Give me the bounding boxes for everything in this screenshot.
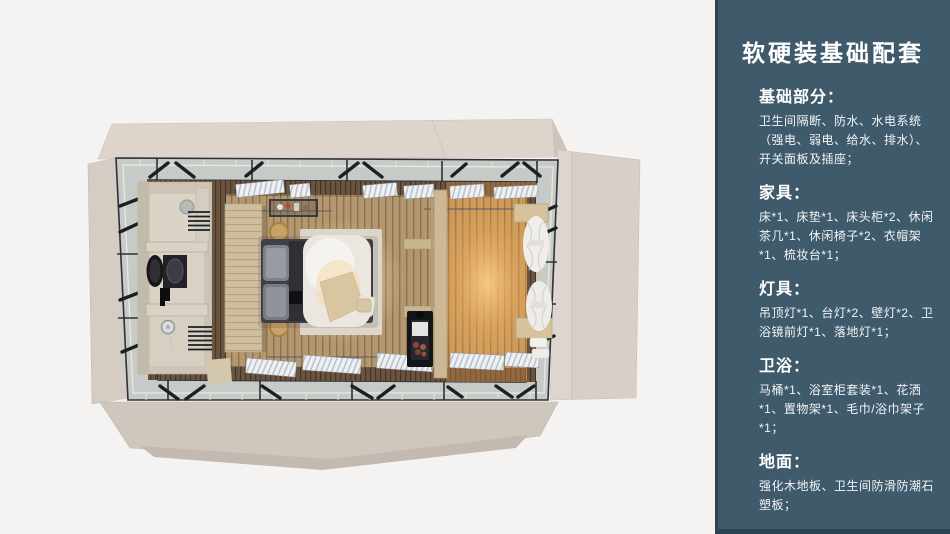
section-lighting: 灯具： 吊顶灯*1、台灯*2、壁灯*2、卫浴镜前灯*1、落地灯*1；: [759, 280, 936, 342]
section-bathroom-heading: 卫浴：: [759, 357, 936, 377]
spec-sections: 基础部分： 卫生间隔断、防水、水电系统（强电、弱电、给水、排水）、开关面板及插座…: [759, 88, 936, 515]
section-furniture-body: 床*1、床垫*1、床头柜*2、休闲茶几*1、休闲椅子*2、衣帽架*1、梳妆台*1…: [759, 208, 936, 265]
bed: [258, 229, 382, 335]
floor-plan-svg: [0, 0, 715, 534]
curtain: [523, 216, 549, 272]
section-furniture-heading: 家具：: [759, 184, 936, 204]
panel-title: 软硬装基础配套: [742, 40, 940, 68]
section-lighting-heading: 灯具：: [759, 280, 936, 300]
deck-right: [550, 150, 640, 400]
towel-stack: [530, 338, 547, 347]
bathroom: [138, 182, 212, 374]
section-flooring: 地面： 强化木地板、卫生间防滑防潮石塑板；: [759, 453, 936, 515]
towel-stack: [532, 349, 549, 358]
room-render: [0, 0, 715, 534]
wood-stove: [407, 311, 433, 367]
section-basics: 基础部分： 卫生间隔断、防水、水电系统（强电、弱电、给水、排水）、开关面板及插座…: [759, 88, 936, 169]
pouf: [357, 299, 371, 312]
section-bathroom: 卫浴： 马桶*1、浴室柜套装*1、花洒*1、置物架*1、毛巾/浴巾架子*1；: [759, 357, 936, 438]
section-flooring-body: 强化木地板、卫生间防滑防潮石塑板；: [759, 477, 936, 515]
section-furniture: 家具： 床*1、床垫*1、床头柜*2、休闲茶几*1、休闲椅子*2、衣帽架*1、梳…: [759, 184, 936, 265]
slat-partition: [212, 182, 226, 374]
bathroom-shelf: [146, 242, 208, 252]
panel-bottom-shade: [718, 529, 950, 534]
section-basics-body: 卫生间隔断、防水、水电系统（强电、弱电、给水、排水）、开关面板及插座；: [759, 112, 936, 169]
section-basics-heading: 基础部分：: [759, 88, 936, 108]
slide: 软硬装基础配套 基础部分： 卫生间隔断、防水、水电系统（强电、弱电、给水、排水）…: [0, 0, 950, 534]
curtain: [526, 281, 552, 331]
coat-rack: [270, 200, 317, 216]
section-flooring-heading: 地面：: [759, 453, 936, 473]
deck-awning-top: [98, 119, 570, 159]
bed-tray: [289, 291, 302, 304]
section-lighting-body: 吊顶灯*1、台灯*2、壁灯*2、卫浴镜前灯*1、落地灯*1；: [759, 304, 936, 342]
section-bathroom-body: 马桶*1、浴室柜套装*1、花洒*1、置物架*1、毛巾/浴巾架子*1；: [759, 381, 936, 438]
bathroom-shelf: [146, 304, 208, 316]
spec-panel: 软硬装基础配套 基础部分： 卫生间隔断、防水、水电系统（强电、弱电、给水、排水）…: [715, 0, 950, 534]
door-mat: [206, 358, 232, 384]
